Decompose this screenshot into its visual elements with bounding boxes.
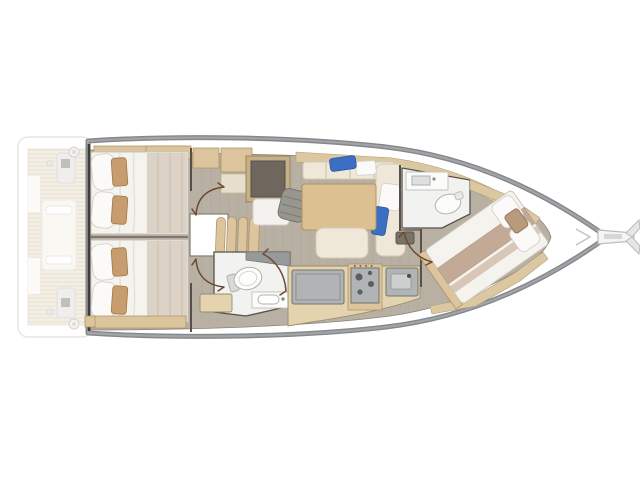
accent-cushion	[111, 157, 128, 186]
step	[215, 217, 225, 254]
bowsprit-assembly	[598, 220, 640, 254]
bed-blanket	[147, 153, 187, 233]
transom-notch-port	[28, 176, 40, 212]
step	[237, 217, 247, 256]
helm-instrument	[61, 298, 70, 307]
accent-cushion	[111, 286, 128, 315]
helm-instrument	[61, 159, 70, 168]
faucet	[432, 177, 435, 180]
deck-fitting	[47, 160, 53, 166]
burner	[368, 271, 372, 275]
vanity-sink	[258, 295, 279, 304]
anchor-fluke-bottom	[626, 237, 640, 254]
swim-platform-cockpit	[18, 137, 92, 337]
burner	[357, 289, 362, 294]
step	[226, 217, 236, 255]
faucet	[281, 297, 284, 300]
nav-cabinet	[193, 148, 219, 168]
winch-drum	[72, 322, 76, 326]
yacht-floor-plan	[0, 0, 640, 480]
burner	[355, 273, 362, 280]
stove-top	[351, 268, 379, 303]
refrigerator-counter	[292, 270, 344, 304]
accent-cushion	[111, 196, 128, 225]
winch-drum	[72, 150, 76, 154]
aft-cabin-port	[90, 146, 191, 234]
step-box	[85, 316, 95, 327]
yacht-floor-plan-canvas	[0, 0, 640, 480]
cockpit-table-slot	[46, 256, 72, 264]
deck-fitting	[47, 309, 53, 315]
bed-blanket	[147, 241, 187, 321]
salon-bench	[316, 228, 368, 258]
burner	[368, 281, 374, 287]
cockpit-table-slot	[46, 206, 72, 214]
accent-cushion	[111, 247, 128, 276]
settee-pillow	[356, 160, 377, 175]
aft-cabin-starboard	[85, 240, 188, 328]
faucet	[407, 274, 411, 278]
foot-bench	[94, 316, 186, 328]
anchor-roller	[604, 234, 622, 239]
chart-table	[251, 161, 285, 197]
head-entry-step	[200, 294, 232, 312]
transom-notch-starboard	[28, 258, 40, 294]
anchor-fluke-top	[626, 220, 640, 237]
salon-table	[302, 184, 376, 230]
fwd-vanity-basin	[412, 176, 430, 185]
